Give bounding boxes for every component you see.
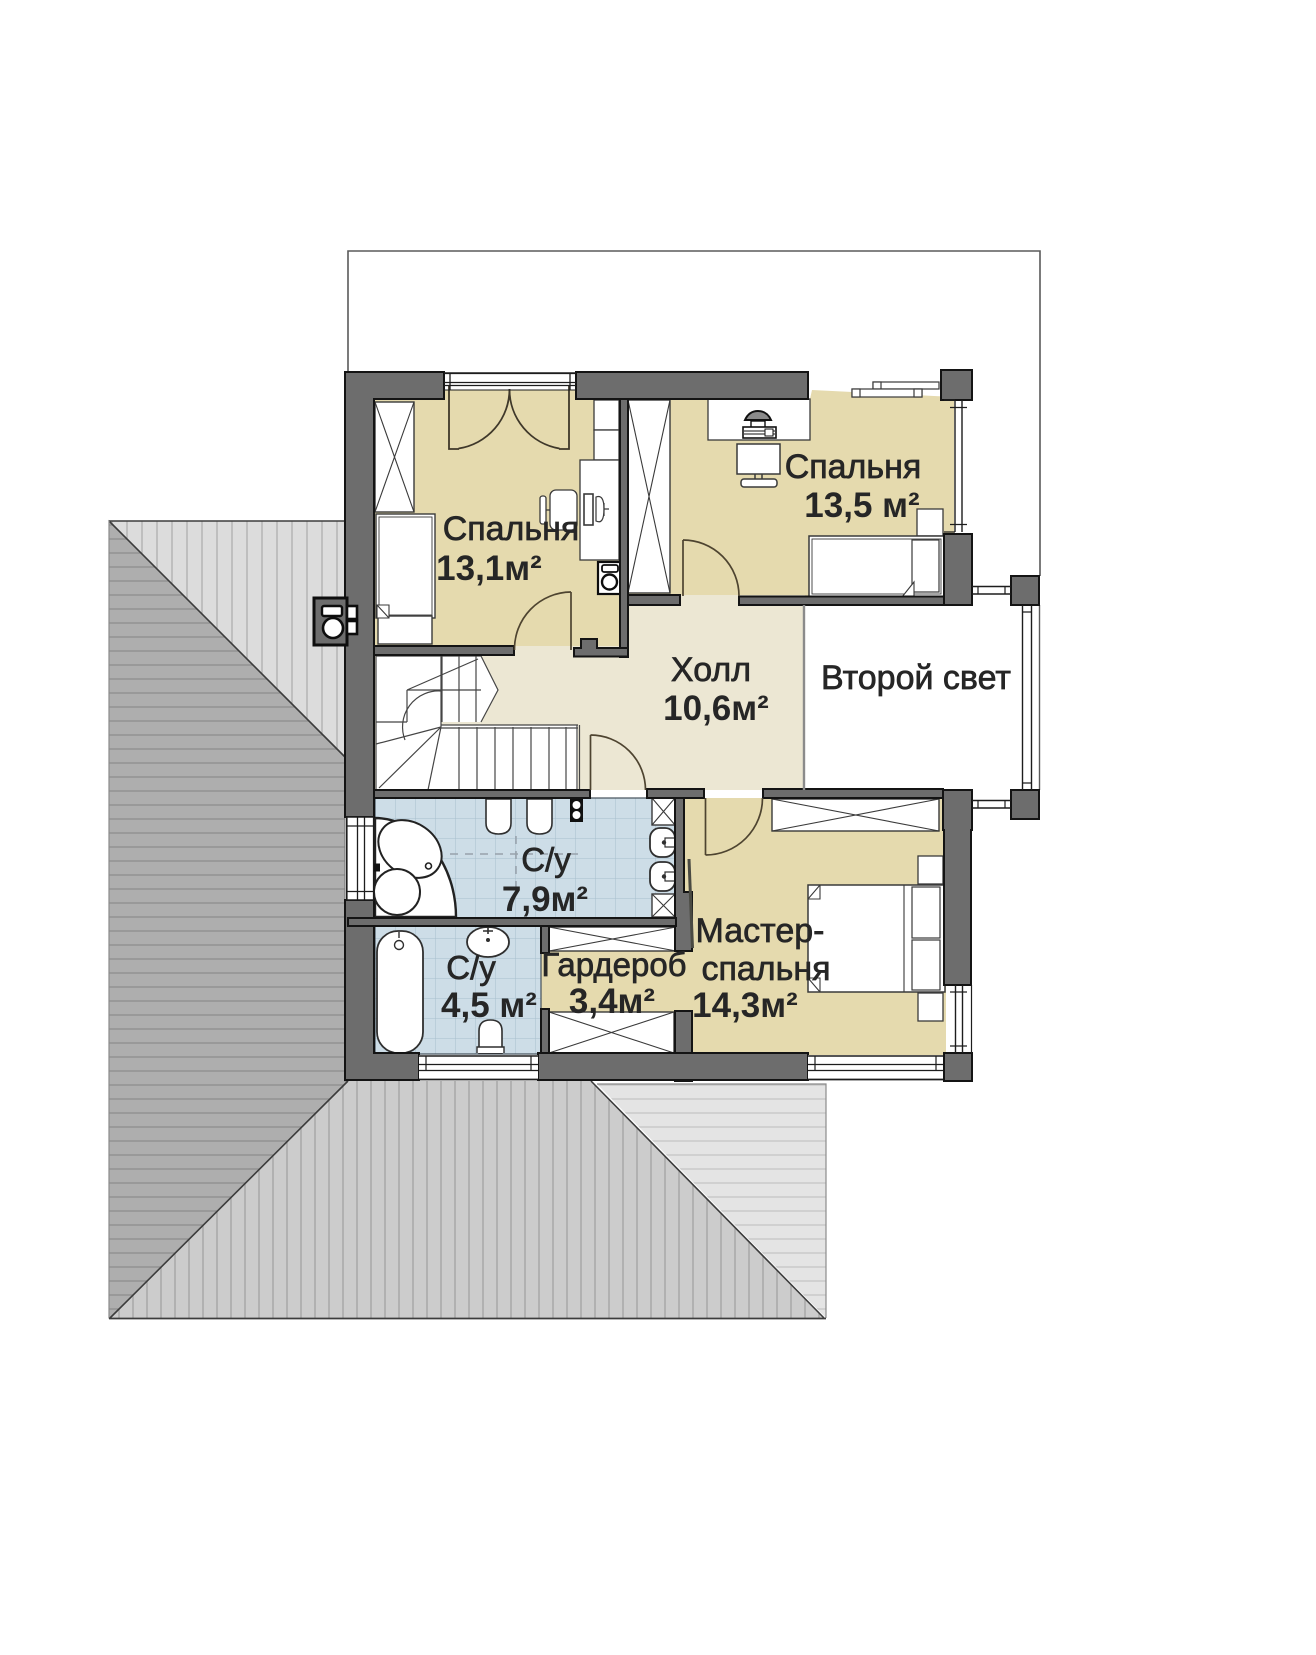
svg-text:Гардероб: Гардероб [541, 946, 686, 983]
svg-text:7,9м²: 7,9м² [502, 880, 588, 919]
svg-text:10,6м²: 10,6м² [663, 689, 769, 728]
svg-text:С/у: С/у [446, 949, 496, 986]
svg-text:13,5 м²: 13,5 м² [804, 486, 919, 525]
svg-text:Спальня: Спальня [443, 510, 580, 548]
svg-text:Мастер-: Мастер- [696, 912, 825, 950]
svg-text:13,1м²: 13,1м² [436, 549, 542, 588]
svg-text:14,3м²: 14,3м² [692, 986, 798, 1025]
svg-text:4,5 м²: 4,5 м² [441, 986, 537, 1025]
svg-text:Спальня: Спальня [785, 448, 922, 486]
svg-text:3,4м²: 3,4м² [569, 982, 655, 1021]
svg-text:С/у: С/у [521, 841, 571, 878]
svg-text:Холл: Холл [671, 651, 751, 689]
svg-text:спальня: спальня [701, 950, 830, 988]
svg-text:Второй свет: Второй свет [821, 659, 1011, 697]
